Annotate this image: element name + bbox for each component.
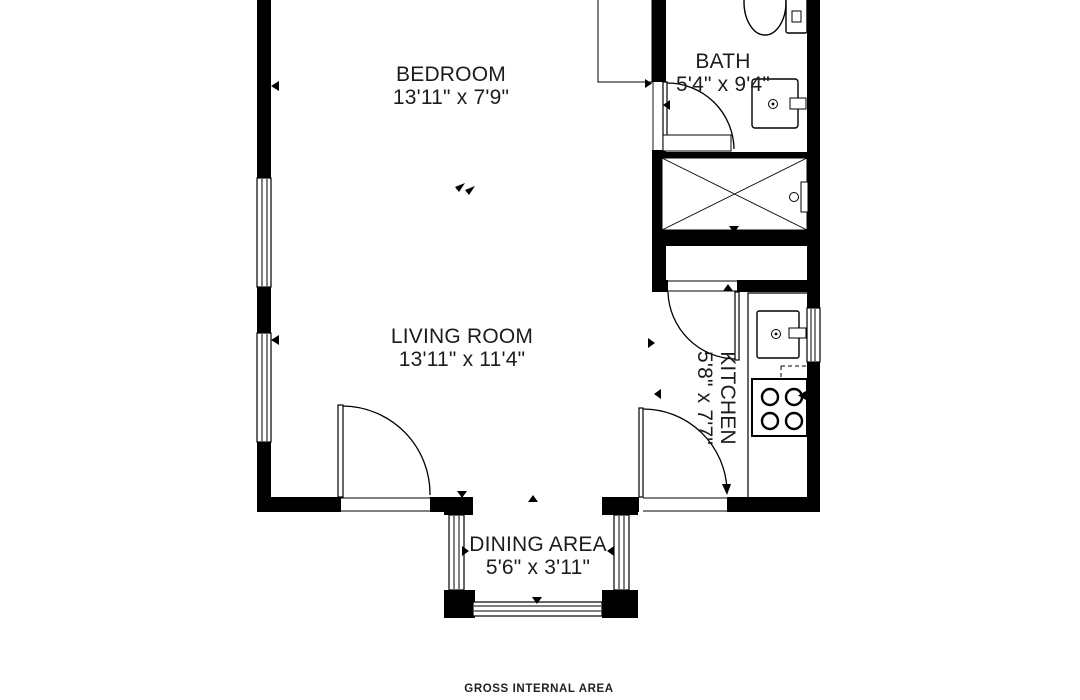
dining-area-label: DINING AREA 5'6" x 3'11" (469, 533, 607, 579)
kitchen-dimensions: 5'8" x 7'7" (693, 351, 716, 445)
dining-area-dimensions: 5'6" x 3'11" (469, 556, 607, 579)
bedroom-name: BEDROOM (393, 63, 509, 86)
shower-icon (662, 158, 808, 230)
threshold-living-door (341, 497, 430, 512)
window-kitchen (807, 308, 820, 362)
living-room-door (338, 405, 430, 497)
kitchen-label: KITCHEN 5'8" x 7'7" (693, 351, 739, 445)
toilet-icon (744, 0, 807, 35)
bedroom-label: BEDROOM 13'11" x 7'9" (393, 63, 509, 109)
living-room-label: LIVING ROOM 13'11" x 11'4" (391, 325, 533, 371)
window-dining-left (449, 515, 464, 590)
stove-icon (752, 379, 807, 436)
bedroom-dimensions: 13'11" x 7'9" (393, 86, 509, 109)
kitchen-name: KITCHEN (716, 351, 739, 445)
window-left-upper (257, 178, 271, 287)
threshold-entry-door (643, 497, 727, 512)
window-dining-right (614, 515, 629, 590)
kitchen-sink-icon (757, 311, 806, 358)
kitchen-door (668, 292, 739, 360)
gross-internal-area-label: GROSS INTERNAL AREA (464, 683, 613, 695)
floor-plan-drawing (0, 0, 1080, 700)
window-dining-bottom (473, 602, 602, 616)
floor-plan: BEDROOM 13'11" x 7'9" BATH 5'4" x 9'4" L… (0, 0, 1080, 700)
bath-name: BATH (676, 50, 770, 73)
wardrobe-icon (598, 0, 652, 82)
bath-label: BATH 5'4" x 9'4" (676, 50, 770, 96)
bath-dimensions: 5'4" x 9'4" (676, 73, 770, 96)
window-left-lower (257, 333, 271, 442)
living-room-name: LIVING ROOM (391, 325, 533, 348)
dining-area-name: DINING AREA (469, 533, 607, 556)
living-room-dimensions: 13'11" x 11'4" (391, 348, 533, 371)
shower-screen-icon (663, 135, 731, 151)
